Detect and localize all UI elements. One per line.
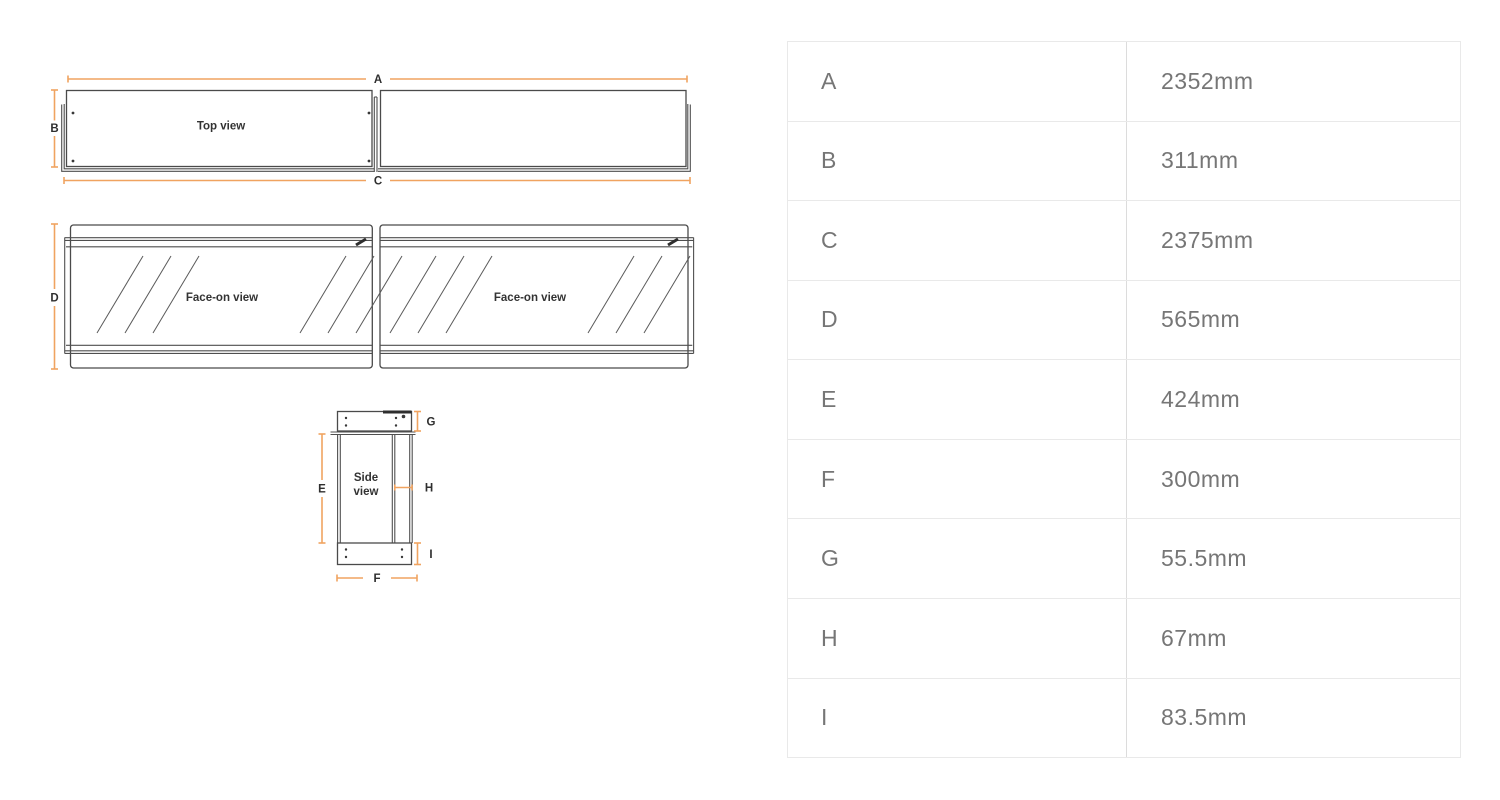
dimensions-table: A 2352mm B 311mm C 2375mm D 565mm E 424m… [787, 41, 1461, 758]
table-row: I 83.5mm [788, 679, 1460, 758]
dimension-key: A [788, 42, 1127, 121]
dimension-value: 2375mm [1127, 201, 1460, 280]
dimension-value: 424mm [1127, 360, 1460, 439]
dimension-key: I [788, 679, 1127, 758]
dim-letter-d: D [50, 293, 58, 305]
dimension-key: B [788, 122, 1127, 201]
face-on-view-drawing: D [50, 224, 693, 369]
dimension-key: H [788, 599, 1127, 678]
top-view-right-tray [378, 104, 690, 171]
dimension-line-g: G [414, 412, 436, 432]
table-row: F 300mm [788, 440, 1460, 520]
dimension-value: 311mm [1127, 122, 1460, 201]
dimension-line-d: D [50, 224, 58, 369]
top-view-label: Top view [197, 121, 245, 133]
face-on-left-label: Face-on view [186, 292, 258, 304]
side-view-top-cap [338, 412, 412, 432]
side-view-label-line1: Side [354, 472, 378, 484]
dimension-value: 83.5mm [1127, 679, 1460, 758]
dimension-line-h: H [395, 483, 433, 495]
dim-letter-h: H [425, 483, 433, 495]
dim-letter-g: G [427, 417, 436, 429]
technical-drawing: A [0, 0, 760, 800]
dim-letter-f: F [373, 573, 380, 585]
dimension-line-b: B [50, 90, 58, 167]
side-view-bottom-screws [345, 548, 403, 558]
table-row: H 67mm [788, 599, 1460, 679]
side-view-bottom-cap [338, 543, 412, 565]
dimension-value: 55.5mm [1127, 519, 1460, 598]
table-row: A 2352mm [788, 42, 1460, 122]
top-view-right-box [381, 91, 687, 167]
table-row: D 565mm [788, 281, 1460, 361]
dimension-line-e: E [318, 434, 326, 543]
dim-letter-b: B [50, 123, 58, 135]
dimension-key: G [788, 519, 1127, 598]
table-row: B 311mm [788, 122, 1460, 202]
dimension-value: 2352mm [1127, 42, 1460, 121]
dimension-line-a: A [68, 74, 687, 86]
table-row: E 424mm [788, 360, 1460, 440]
dimensions-spec-page: A [0, 0, 1500, 800]
dimension-value: 67mm [1127, 599, 1460, 678]
top-view-left-tray [62, 104, 374, 171]
dimension-line-i: I [414, 543, 433, 565]
face-on-right-label: Face-on view [494, 292, 566, 304]
dim-letter-e: E [318, 484, 326, 496]
top-view-junction [374, 97, 377, 172]
side-view-label-line2: view [354, 486, 379, 498]
dim-letter-i: I [429, 549, 432, 561]
table-row: C 2375mm [788, 201, 1460, 281]
side-view-drawing: E G H I [318, 412, 435, 586]
side-view-top-screws [345, 417, 397, 427]
dimension-key: E [788, 360, 1127, 439]
dimension-line-f: F [337, 573, 417, 585]
dim-letter-a: A [374, 74, 382, 86]
table-row: G 55.5mm [788, 519, 1460, 599]
dim-letter-c: C [374, 176, 382, 188]
dimension-line-c: C [64, 176, 690, 188]
dimension-key: D [788, 281, 1127, 360]
dimension-key: F [788, 440, 1127, 519]
dimension-key: C [788, 201, 1127, 280]
dimension-value: 300mm [1127, 440, 1460, 519]
top-view-drawing: A [50, 74, 690, 188]
top-view-screws [72, 112, 371, 163]
dimension-value: 565mm [1127, 281, 1460, 360]
